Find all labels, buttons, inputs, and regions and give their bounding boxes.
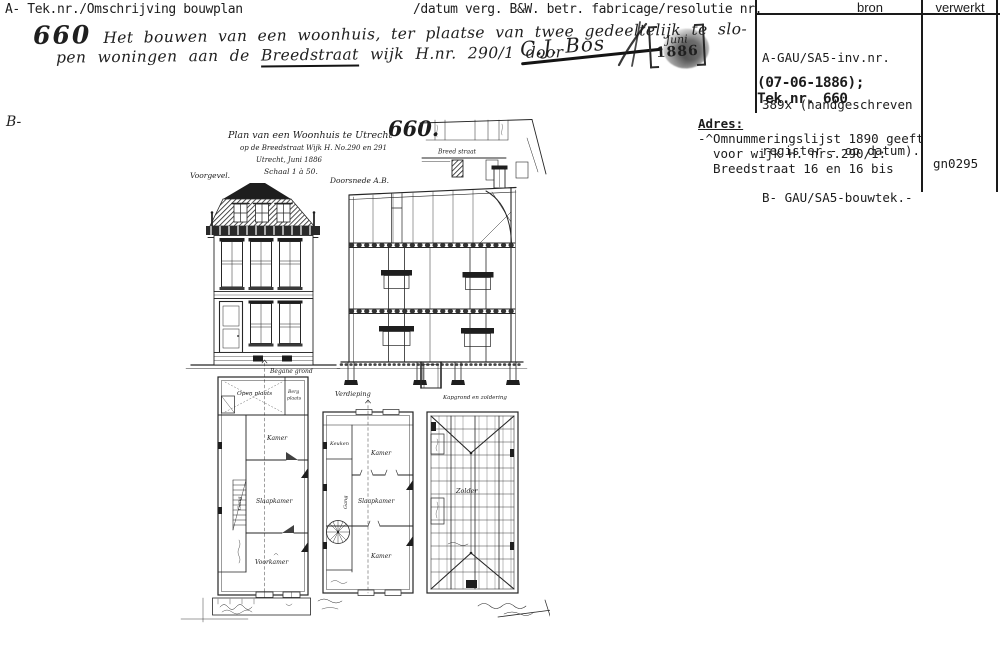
roof-plan [427, 412, 518, 593]
table-right-border [996, 0, 998, 192]
roof-battens [431, 429, 514, 572]
room-voorkamer: Voorkamer [255, 559, 289, 566]
source-line: A-GAU/SA5-inv.nr. [762, 50, 920, 66]
source-reference-block: A-GAU/SA5-inv.nr. 389x (handgeschreven r… [762, 19, 920, 221]
handwritten-teknr: 660 [33, 20, 92, 50]
section-b-label: B- [6, 114, 21, 130]
table-column-divider [921, 0, 923, 192]
room-slaapkamer: Slaapkamer [256, 498, 293, 505]
cross-section [337, 166, 527, 389]
drawing-number: 660. [388, 116, 439, 141]
first-storey-fireplaces [381, 248, 494, 310]
adres-line-3: Breedstraat 16 en 16 bis [713, 161, 894, 176]
column-header-verwerkt: verwerkt [925, 0, 995, 15]
adres-label: Adres: [698, 116, 743, 131]
architectural-drawing: Plan van een Woonhuis te Utrecht op de B… [90, 112, 550, 632]
room-zolder: Zolder [455, 487, 479, 495]
upper-floor-windows [220, 238, 303, 290]
date-stamp: Juni 1886 [648, 24, 706, 69]
column-a-header: A- Tek.nr./Omschrijving bouwplan [5, 2, 243, 17]
cellar-entrance [421, 362, 441, 388]
label-street: Breed straat [437, 149, 477, 156]
room-keuken: Keuken [329, 441, 349, 447]
roof-cap [223, 183, 291, 199]
front-door [220, 302, 243, 353]
stamp-year: 1886 [655, 43, 699, 59]
room-kamer-3: Kamer [370, 553, 392, 560]
source-date-line: (07-06-1886); [757, 75, 864, 91]
label-kapgrond: Kapgrond en zoldering [442, 395, 507, 401]
street-name-underlined: Breedstraat [261, 45, 359, 67]
room-open-plaats: Open plaats [237, 391, 272, 397]
dormer-windows [232, 204, 292, 223]
draughtsman-note [478, 600, 550, 622]
drawing-title: Plan van een Woonhuis te Utrecht [227, 130, 393, 141]
column-header-bron: bron [820, 0, 920, 15]
ground-storey-fireplaces [379, 314, 494, 363]
building-plot [452, 160, 463, 177]
label-begane-grond: Begane grond [269, 368, 313, 375]
drawing-scale: Schaal 1 à 50. [264, 167, 318, 176]
adres-line-2: voor wijk H. nrs.290/1: [713, 146, 886, 161]
archive-record-page: { "header": { "left": "A- Tek.nr./Omschr… [0, 0, 1000, 649]
room-gang: Gang [237, 497, 243, 510]
source-line: B- GAU/SA5-bouwtek.- [762, 190, 920, 206]
source-teknr-line: Tek.nr. 660 [757, 91, 848, 107]
room-kamer-2: Kamer [370, 450, 392, 457]
adres-line-1: -^Omnummeringslijst 1890 geeft [698, 131, 924, 146]
cornice [206, 226, 320, 235]
room-bergplaats: Berg [287, 389, 299, 395]
label-verdieping: Verdieping [335, 390, 371, 398]
room-kamer: Kamer [266, 435, 288, 442]
spiral-staircase [327, 521, 350, 544]
drawing-date: Utrecht, Juni 1886 [256, 156, 323, 164]
ground-floor-windows [249, 301, 303, 347]
hip-lines-top [431, 416, 514, 453]
label-doorsnede: Doorsnede A.B. [329, 176, 389, 185]
scale-bar [181, 598, 342, 622]
room-bergplaats: plaats [287, 396, 302, 402]
room-gang-2: Gang [343, 496, 349, 509]
drawing-subtitle: op de Breedstraat Wijk H. No.290 en 291 [240, 144, 387, 152]
label-voorgevel: Voorgevel. [190, 171, 230, 180]
scan-code: gn0295 [933, 156, 978, 171]
room-slaapkamer-2: Slaapkamer [358, 498, 395, 505]
